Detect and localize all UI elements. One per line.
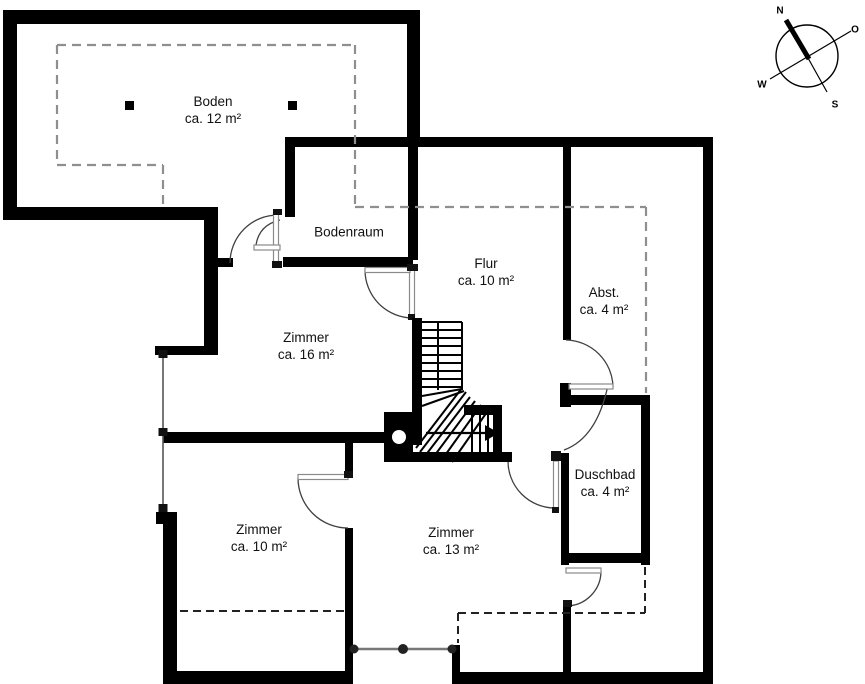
room-area: ca. 10 m² (458, 272, 514, 289)
room-label-zimmer-16: Zimmer ca. 16 m² (278, 329, 334, 363)
window-line (159, 350, 168, 512)
stair-direction-arrow (426, 425, 499, 441)
room-area: ca. 4 m² (580, 301, 629, 318)
walls (3, 10, 713, 684)
room-label-zimmer-10: Zimmer ca. 10 m² (231, 521, 287, 555)
compass-rose (770, 20, 851, 92)
floor-plan: Boden ca. 12 m² Bodenraum Flur ca. 10 m²… (0, 0, 865, 684)
room-label-zimmer-13: Zimmer ca. 13 m² (423, 524, 479, 558)
room-name: Flur (458, 255, 514, 272)
room-name: Duschbad (575, 466, 636, 483)
railing (350, 644, 457, 654)
room-name: Zimmer (423, 524, 479, 541)
room-area: ca. 10 m² (231, 538, 287, 555)
stair-newel-post (392, 430, 406, 444)
room-area: ca. 16 m² (278, 346, 334, 363)
room-name: Zimmer (231, 521, 287, 538)
room-label-bodenraum: Bodenraum (314, 224, 384, 241)
stair-treads (416, 322, 488, 462)
compass-label-east: O (851, 25, 859, 36)
compass-label-south: S (832, 100, 839, 111)
room-area: ca. 4 m² (575, 483, 636, 500)
room-area: ca. 12 m² (185, 110, 241, 127)
compass-label-north: N (776, 6, 783, 17)
room-name: Abst. (580, 284, 629, 301)
floor-plan-drawing (0, 0, 865, 684)
staircase (384, 318, 512, 462)
room-label-boden: Boden ca. 12 m² (185, 93, 241, 127)
compass-label-west: W (757, 80, 766, 91)
room-name: Zimmer (278, 329, 334, 346)
room-label-duschbad: Duschbad ca. 4 m² (575, 466, 636, 500)
room-name: Boden (185, 93, 241, 110)
room-label-abst: Abst. ca. 4 m² (580, 284, 629, 318)
room-label-flur: Flur ca. 10 m² (458, 255, 514, 289)
room-area: ca. 13 m² (423, 541, 479, 558)
room-name: Bodenraum (314, 224, 384, 241)
